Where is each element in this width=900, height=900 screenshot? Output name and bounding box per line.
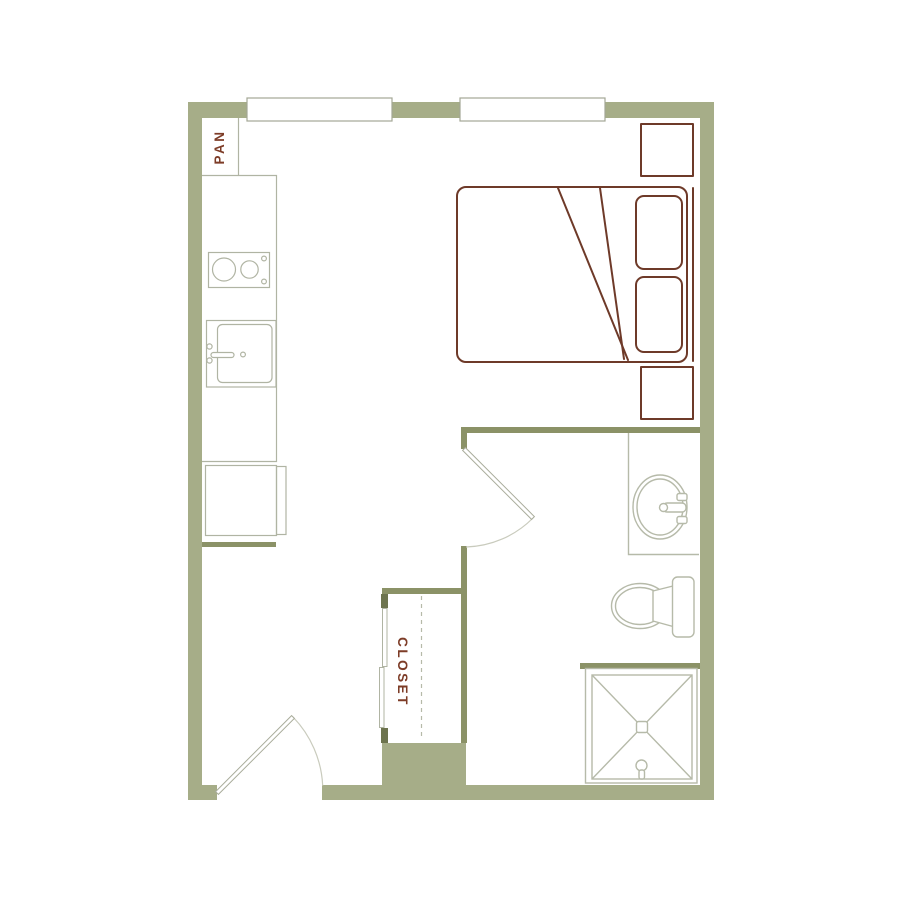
toilet-seat-hinge (653, 586, 673, 627)
bed-area (457, 124, 693, 419)
nightstand-bottom (641, 367, 693, 419)
blanket-fold-line-2 (600, 188, 624, 359)
floor-plan-svg: PAN CLOSET (0, 0, 900, 900)
window-2 (460, 98, 605, 121)
nightstand-top (641, 124, 693, 176)
wall-bottom-main-segment (322, 785, 714, 800)
wall-left (188, 102, 202, 800)
bathroom-door-stub-wall (461, 427, 467, 449)
refrigerator-door-edge (277, 467, 287, 535)
closet-jamb-bottom (381, 728, 388, 743)
entry-door-swing-arc (293, 717, 323, 786)
bathroom-top-wall (461, 427, 700, 433)
sink-handle-dot-1 (207, 344, 212, 349)
closet-label: CLOSET (395, 637, 410, 707)
bed (457, 187, 687, 362)
cooktop-knob-1 (262, 256, 267, 261)
faucet-handle-2 (677, 517, 687, 524)
kitchen (202, 118, 286, 536)
shower-drain (637, 722, 648, 733)
closet-right-wall (461, 546, 467, 743)
sink-handle-dot-2 (207, 358, 212, 363)
kitchen-counter (202, 176, 277, 462)
faucet-base (660, 504, 668, 512)
pillow-2 (636, 277, 682, 352)
toilet (612, 577, 695, 637)
cooktop (209, 253, 270, 288)
entry-door (216, 716, 323, 795)
kitchen-sink (207, 321, 277, 388)
shower (586, 669, 698, 784)
bathroom-door (463, 448, 535, 547)
refrigerator (206, 466, 287, 536)
refrigerator-outline (206, 466, 277, 536)
bathroom-door-leaf (463, 448, 535, 520)
closet-top-wall (382, 588, 467, 594)
cooktop-outline (209, 253, 270, 288)
doors (216, 448, 535, 795)
closet-jamb-top (381, 594, 388, 608)
cooktop-knob-2 (262, 279, 267, 284)
burner-small (241, 261, 258, 278)
pantry-label: PAN (212, 129, 227, 164)
burner-large (213, 258, 236, 281)
bathroom-door-swing-arc (466, 518, 533, 547)
vanity (629, 433, 700, 555)
floor-plan: PAN CLOSET (0, 0, 900, 900)
bathroom (586, 433, 700, 783)
blanket-fold-line-1 (558, 188, 628, 360)
entry-door-leaf (216, 716, 295, 795)
faucet-handle-1 (677, 494, 687, 501)
pillow-1 (636, 196, 682, 269)
kitchen-end-wall (202, 542, 276, 547)
window-1 (247, 98, 392, 121)
wall-right (700, 102, 714, 800)
toilet-tank (673, 577, 695, 637)
closet-wall-block (382, 743, 466, 785)
closet-door-panel-1 (383, 609, 388, 667)
sink-drain-dot (241, 352, 246, 357)
closet-door-panel-2 (380, 668, 385, 728)
wall-bottom-left-segment (188, 785, 217, 800)
shower-head-stem (639, 770, 645, 779)
sink-faucet-bar (211, 353, 234, 358)
